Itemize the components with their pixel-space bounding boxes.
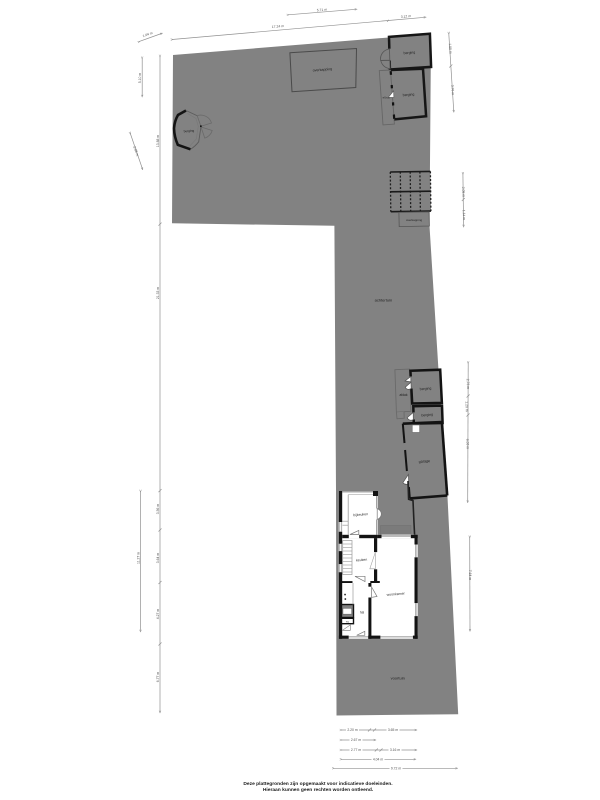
svg-text:5.10 m: 5.10 m xyxy=(138,73,142,84)
svg-text:7.64 m: 7.64 m xyxy=(468,570,472,581)
svg-text:1.88 m: 1.88 m xyxy=(448,43,453,54)
svg-text:2.67 m: 2.67 m xyxy=(351,738,362,742)
svg-text:3.64 m: 3.64 m xyxy=(156,553,160,564)
svg-text:overkapping: overkapping xyxy=(406,218,423,222)
svg-text:4.04 m: 4.04 m xyxy=(373,758,384,762)
svg-text:3.76 m: 3.76 m xyxy=(450,85,455,96)
svg-text:2.08 m: 2.08 m xyxy=(461,187,465,198)
svg-text:achtertuin: achtertuin xyxy=(375,298,393,303)
svg-text:11.27 m: 11.27 m xyxy=(136,552,140,564)
svg-text:3.65 m: 3.65 m xyxy=(388,728,399,732)
svg-text:4.27 m: 4.27 m xyxy=(156,609,160,620)
svg-text:3.16 m: 3.16 m xyxy=(390,748,401,752)
svg-text:2.77 m: 2.77 m xyxy=(351,748,362,752)
svg-text:1.20 m: 1.20 m xyxy=(465,401,469,412)
svg-text:9.72 m: 9.72 m xyxy=(391,767,402,771)
svg-text:21.33 m: 21.33 m xyxy=(156,287,160,299)
svg-text:2.73 m: 2.73 m xyxy=(466,379,470,390)
svg-text:3.56 m: 3.56 m xyxy=(156,504,160,515)
svg-text:hal: hal xyxy=(360,610,365,614)
svg-text:Hieraan kunnen geen rechten wo: Hieraan kunnen geen rechten worden ontle… xyxy=(263,787,374,793)
svg-text:13.88 m: 13.88 m xyxy=(156,135,160,147)
svg-text:Deze plattegronden zijn opgema: Deze plattegronden zijn opgemaakt voor i… xyxy=(243,781,393,787)
svg-text:afdak: afdak xyxy=(399,393,407,397)
svg-text:2.20 m: 2.20 m xyxy=(347,728,358,732)
svg-text:voortuin: voortuin xyxy=(391,676,405,681)
svg-text:1.14 m: 1.14 m xyxy=(462,210,466,221)
svg-text:6.77 m: 6.77 m xyxy=(156,672,160,683)
svg-text:6.03 m: 6.03 m xyxy=(465,439,469,450)
